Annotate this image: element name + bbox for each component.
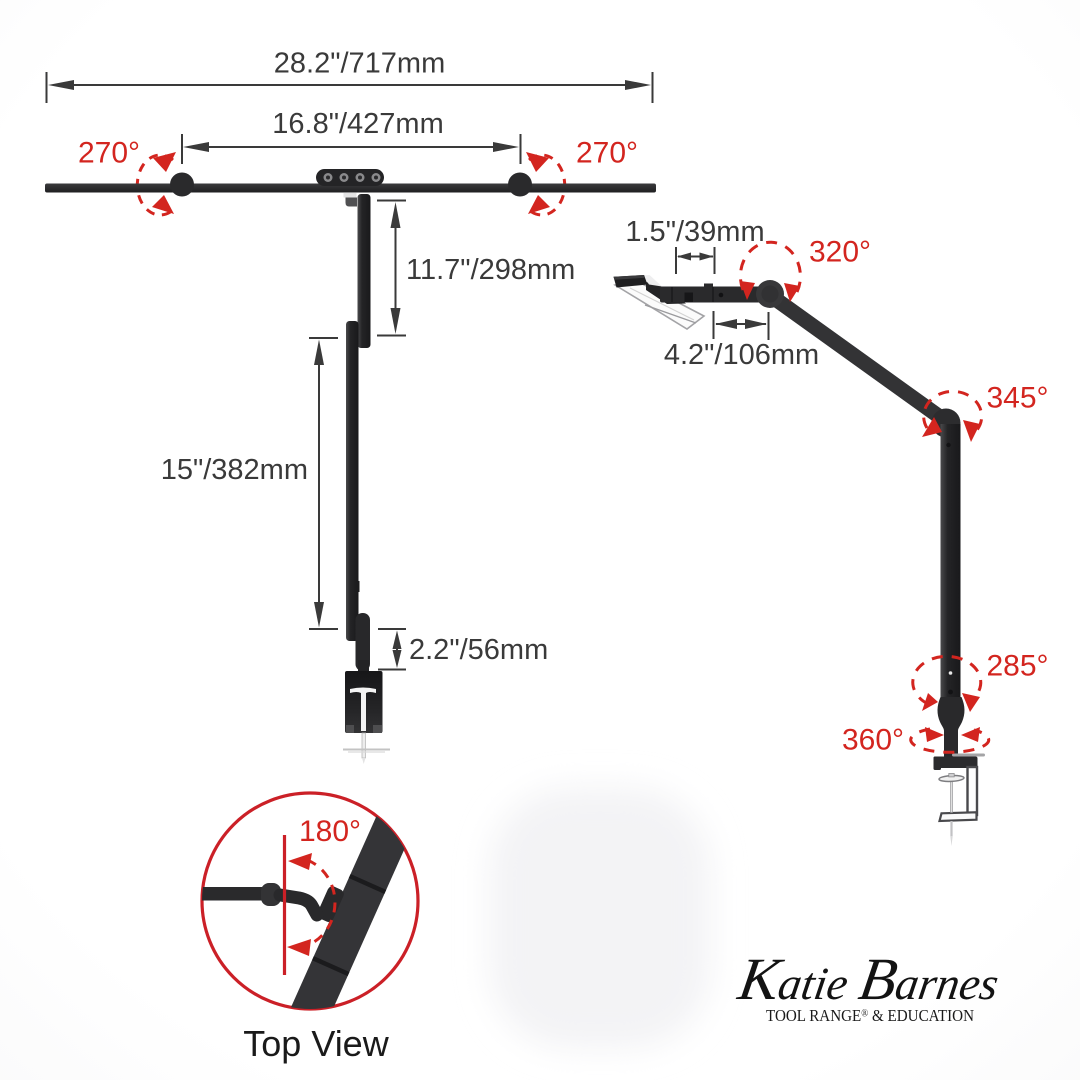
- svg-text:1.5"/39mm: 1.5"/39mm: [625, 216, 764, 248]
- svg-text:4.2"/106mm: 4.2"/106mm: [664, 339, 819, 371]
- svg-text:285°: 285°: [986, 650, 1048, 683]
- svg-text:270°: 270°: [78, 137, 140, 170]
- svg-text:180°: 180°: [299, 815, 361, 848]
- svg-text:360°: 360°: [842, 724, 904, 757]
- svg-text:Top View: Top View: [243, 1023, 389, 1064]
- svg-text:345°: 345°: [986, 382, 1048, 415]
- svg-text:Katie Barnes: Katie Barnes: [733, 946, 1004, 1013]
- svg-text:28.2"/717mm: 28.2"/717mm: [274, 48, 446, 80]
- svg-text:16.8"/427mm: 16.8"/427mm: [272, 108, 444, 140]
- svg-text:11.7"/298mm: 11.7"/298mm: [406, 254, 575, 286]
- svg-text:2.2"/56mm: 2.2"/56mm: [409, 634, 548, 666]
- svg-text:TOOL RANGE® & EDUCATION: TOOL RANGE® & EDUCATION: [766, 1006, 974, 1025]
- svg-text:320°: 320°: [809, 236, 871, 269]
- svg-text:270°: 270°: [576, 137, 638, 170]
- svg-text:15"/382mm: 15"/382mm: [161, 454, 308, 486]
